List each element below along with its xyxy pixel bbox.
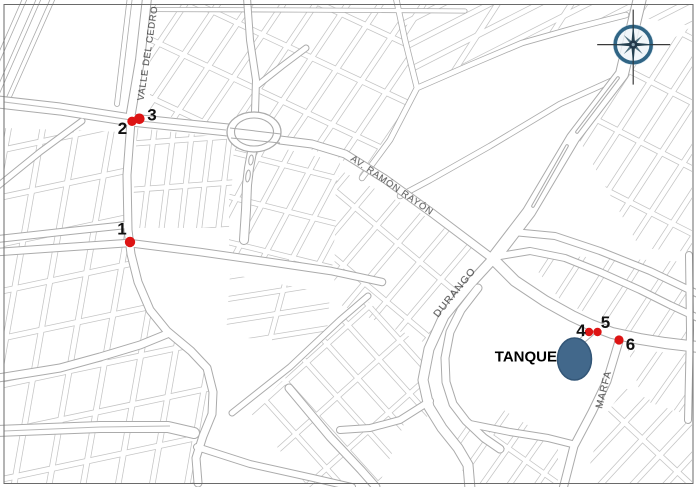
svg-text:TANQUE: TANQUE	[495, 349, 557, 366]
svg-text:2: 2	[118, 119, 127, 138]
svg-text:6: 6	[626, 335, 635, 354]
svg-text:1: 1	[117, 220, 126, 239]
svg-text:3: 3	[147, 106, 156, 125]
svg-text:4: 4	[576, 321, 586, 340]
svg-text:5: 5	[601, 313, 610, 332]
